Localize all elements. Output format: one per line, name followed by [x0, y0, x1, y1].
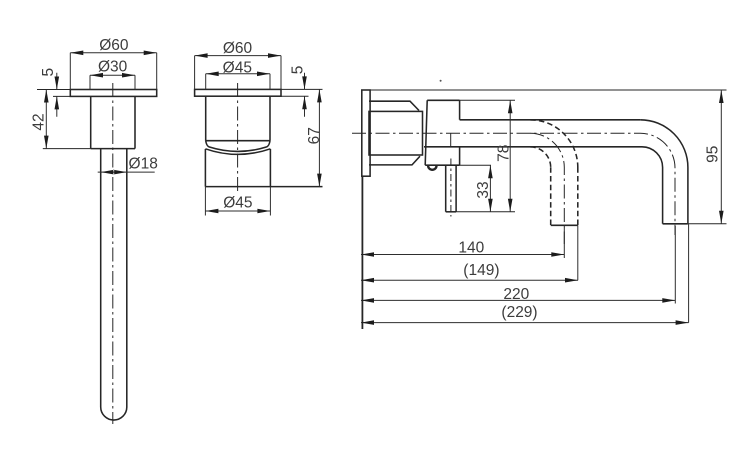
svg-text:Ø18: Ø18 — [129, 155, 158, 172]
svg-text:Ø45: Ø45 — [223, 195, 252, 212]
svg-text:140: 140 — [458, 239, 484, 256]
svg-text:5: 5 — [40, 68, 57, 77]
svg-text:67: 67 — [306, 127, 323, 144]
svg-text:5: 5 — [290, 66, 307, 75]
svg-text:Ø60: Ø60 — [223, 40, 253, 57]
svg-text:220: 220 — [503, 286, 529, 303]
svg-text:(149): (149) — [463, 262, 499, 279]
svg-text:Ø30: Ø30 — [98, 59, 128, 76]
svg-text:42: 42 — [30, 113, 47, 130]
svg-text:95: 95 — [704, 146, 721, 163]
svg-text:78: 78 — [496, 145, 513, 162]
svg-text:Ø45: Ø45 — [223, 59, 252, 76]
svg-text:33: 33 — [475, 181, 492, 198]
svg-text:Ø60: Ø60 — [99, 37, 129, 54]
svg-text:(229): (229) — [501, 304, 537, 321]
